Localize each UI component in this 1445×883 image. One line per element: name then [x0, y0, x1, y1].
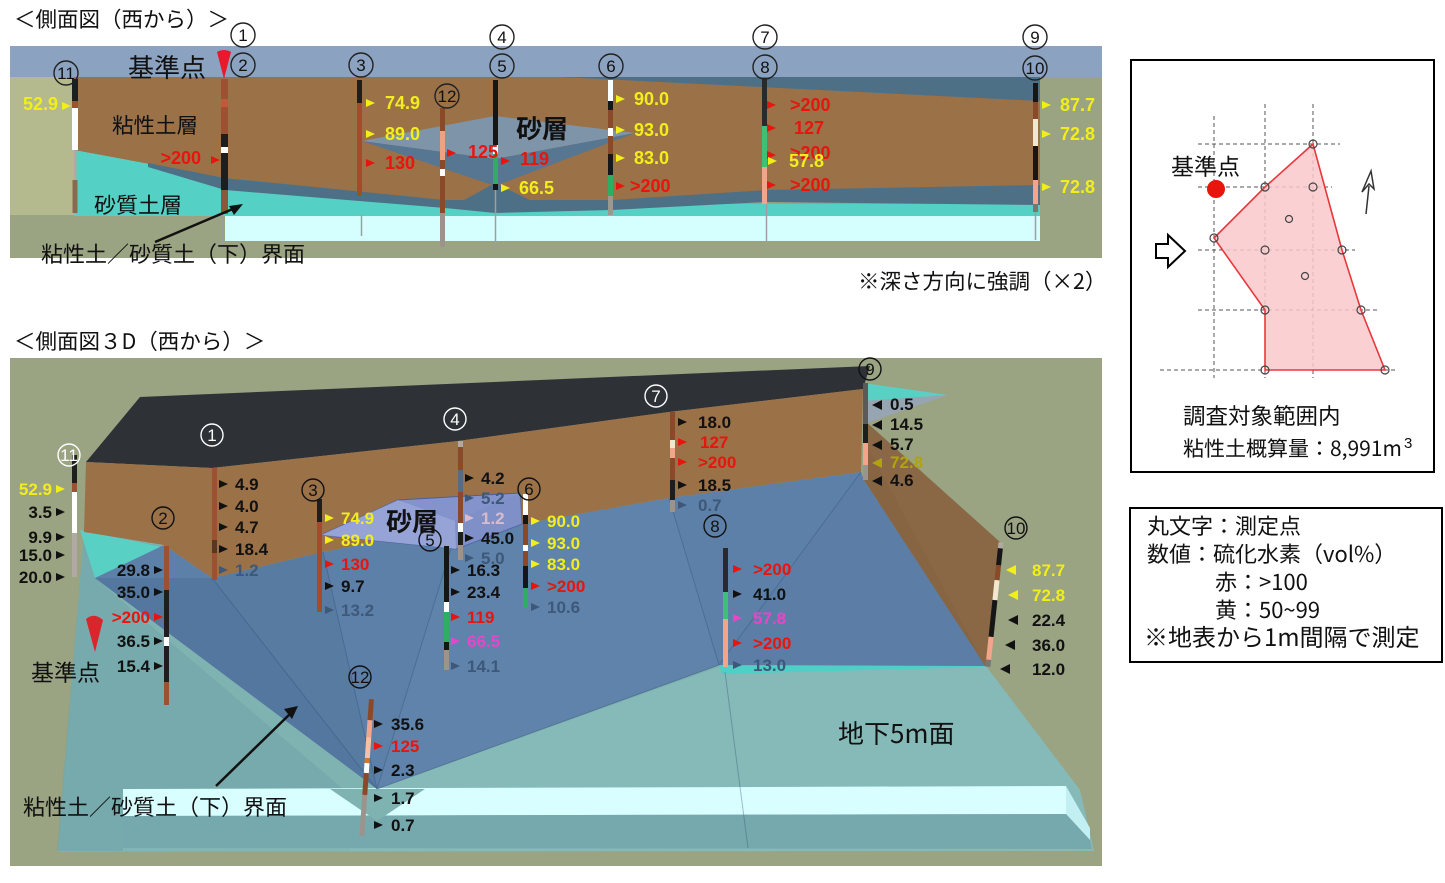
- svg-text:>200: >200: [790, 95, 831, 115]
- svg-text:>200: >200: [698, 453, 736, 472]
- svg-text:9: 9: [865, 360, 874, 379]
- svg-text:8: 8: [710, 517, 719, 536]
- svg-text:>200: >200: [753, 560, 791, 579]
- svg-text:4.9: 4.9: [235, 475, 259, 494]
- svg-text:10.6: 10.6: [547, 598, 580, 617]
- svg-text:6: 6: [524, 480, 533, 499]
- svg-text:>200: >200: [547, 577, 585, 596]
- svg-text:1: 1: [207, 426, 216, 445]
- svg-text:83.0: 83.0: [547, 555, 580, 574]
- svg-text:18.5: 18.5: [698, 476, 731, 495]
- svg-text:127: 127: [794, 118, 824, 138]
- svg-text:4: 4: [497, 28, 506, 47]
- svg-text:15.4: 15.4: [117, 657, 151, 676]
- svg-text:35.0: 35.0: [117, 583, 150, 602]
- svg-text:87.7: 87.7: [1032, 561, 1065, 580]
- svg-text:6: 6: [606, 57, 615, 76]
- svg-text:>200: >200: [753, 634, 791, 653]
- svg-text:130: 130: [385, 153, 415, 173]
- svg-text:45.0: 45.0: [481, 529, 514, 548]
- svg-text:7: 7: [760, 28, 769, 47]
- svg-text:>200: >200: [790, 175, 831, 195]
- svg-text:57.8: 57.8: [789, 151, 824, 171]
- svg-text:7: 7: [651, 387, 660, 406]
- svg-text:18.0: 18.0: [698, 413, 731, 432]
- svg-text:72.8: 72.8: [1032, 586, 1065, 605]
- svg-text:12.0: 12.0: [1032, 660, 1065, 679]
- svg-text:12: 12: [438, 87, 457, 106]
- svg-text:74.9: 74.9: [341, 509, 374, 528]
- svg-text:23.4: 23.4: [467, 583, 501, 602]
- svg-text:2.3: 2.3: [391, 761, 415, 780]
- svg-text:0.7: 0.7: [391, 816, 415, 835]
- svg-text:90.0: 90.0: [547, 512, 580, 531]
- svg-text:2: 2: [158, 509, 167, 528]
- svg-text:14.1: 14.1: [467, 657, 500, 676]
- svg-text:72.8: 72.8: [890, 453, 923, 472]
- svg-text:4.6: 4.6: [890, 471, 914, 490]
- svg-text:125: 125: [468, 142, 498, 162]
- svg-text:72.8: 72.8: [1060, 124, 1095, 144]
- svg-text:0.7: 0.7: [698, 496, 722, 515]
- svg-text:52.9: 52.9: [19, 480, 52, 499]
- svg-text:10: 10: [1007, 519, 1026, 538]
- svg-text:9: 9: [1030, 28, 1039, 47]
- svg-text:36.5: 36.5: [117, 632, 150, 651]
- svg-text:18.4: 18.4: [235, 540, 269, 559]
- svg-text:15.0: 15.0: [19, 546, 52, 565]
- svg-text:1.2: 1.2: [235, 561, 259, 580]
- svg-text:22.4: 22.4: [1032, 611, 1066, 630]
- svg-text:5.7: 5.7: [890, 435, 914, 454]
- svg-text:66.5: 66.5: [519, 178, 554, 198]
- svg-text:5.2: 5.2: [481, 489, 505, 508]
- svg-text:>200: >200: [630, 176, 671, 196]
- svg-text:83.0: 83.0: [634, 148, 669, 168]
- svg-text:3.5: 3.5: [28, 503, 52, 522]
- svg-text:93.0: 93.0: [547, 534, 580, 553]
- svg-text:72.8: 72.8: [1060, 177, 1095, 197]
- svg-text:87.7: 87.7: [1060, 95, 1095, 115]
- svg-text:13.0: 13.0: [753, 656, 786, 675]
- svg-text:119: 119: [467, 608, 494, 627]
- svg-text:4.2: 4.2: [481, 469, 505, 488]
- svg-text:3: 3: [308, 481, 317, 500]
- svg-text:66.5: 66.5: [467, 632, 500, 651]
- svg-text:10: 10: [1026, 59, 1045, 78]
- svg-text:35.6: 35.6: [391, 715, 424, 734]
- svg-text:130: 130: [341, 555, 369, 574]
- svg-text:1.7: 1.7: [391, 789, 415, 808]
- svg-text:119: 119: [520, 149, 549, 169]
- svg-text:5: 5: [497, 57, 506, 76]
- svg-text:89.0: 89.0: [341, 531, 374, 550]
- svg-text:11: 11: [60, 446, 78, 465]
- svg-text:127: 127: [700, 433, 728, 452]
- svg-text:14.5: 14.5: [890, 415, 923, 434]
- svg-text:12: 12: [351, 668, 370, 687]
- svg-text:0.5: 0.5: [890, 395, 914, 414]
- svg-text:1.2: 1.2: [481, 509, 505, 528]
- svg-text:2: 2: [238, 56, 247, 75]
- svg-text:52.9: 52.9: [23, 94, 58, 114]
- svg-text:1: 1: [238, 26, 247, 45]
- svg-text:36.0: 36.0: [1032, 636, 1065, 655]
- svg-text:4: 4: [450, 410, 459, 429]
- svg-text:5: 5: [425, 531, 434, 550]
- svg-text:16.3: 16.3: [467, 561, 500, 580]
- svg-text:4.0: 4.0: [235, 497, 259, 516]
- svg-text:93.0: 93.0: [634, 120, 669, 140]
- svg-text:90.0: 90.0: [634, 89, 669, 109]
- svg-text:9.9: 9.9: [28, 528, 52, 547]
- svg-text:57.8: 57.8: [753, 609, 786, 628]
- svg-text:3: 3: [1404, 435, 1412, 452]
- svg-text:89.0: 89.0: [385, 124, 420, 144]
- svg-text:9.7: 9.7: [341, 577, 365, 596]
- svg-text:>200: >200: [160, 148, 201, 168]
- svg-text:11: 11: [57, 64, 75, 83]
- svg-text:20.0: 20.0: [19, 568, 52, 587]
- svg-text:8: 8: [760, 58, 769, 77]
- svg-text:3: 3: [356, 56, 365, 75]
- svg-text:>200: >200: [112, 608, 150, 627]
- svg-text:13.2: 13.2: [341, 601, 374, 620]
- svg-text:4.7: 4.7: [235, 518, 259, 537]
- svg-text:125: 125: [391, 737, 419, 756]
- svg-text:41.0: 41.0: [753, 585, 786, 604]
- svg-text:29.8: 29.8: [117, 561, 150, 580]
- svg-text:74.9: 74.9: [385, 93, 420, 113]
